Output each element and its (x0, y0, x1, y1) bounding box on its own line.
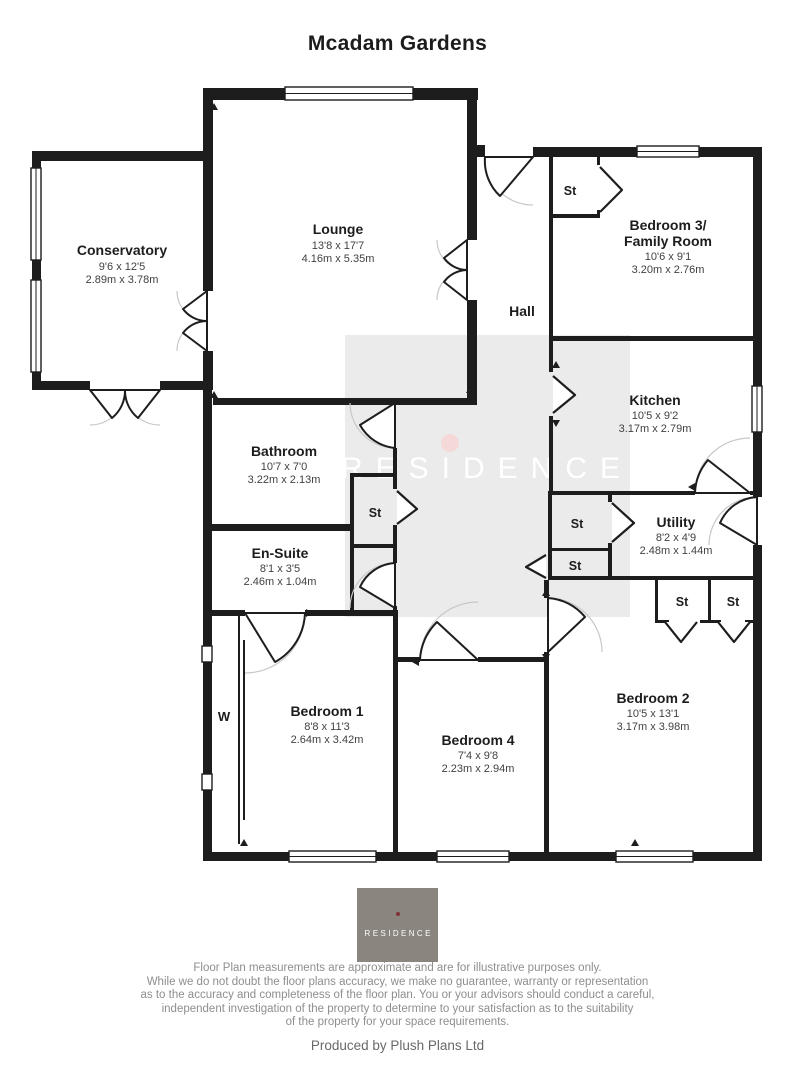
room-name: Bedroom 1 (290, 703, 363, 719)
room-dims-m: 2.64m x 3.42m (291, 734, 364, 746)
storage-label: St (571, 517, 584, 531)
room-name: En-Suite (252, 545, 309, 561)
wall-segment (213, 398, 477, 405)
room-dims-m: 2.23m x 2.94m (442, 763, 515, 775)
room-name: Lounge (313, 221, 364, 237)
wall-segment (753, 545, 762, 861)
wall-segment (655, 580, 658, 622)
door-leaf (420, 622, 478, 660)
room-dims-m: 2.89m x 3.78m (86, 274, 159, 286)
logo-text: RESIDENCE (362, 929, 433, 938)
window (202, 646, 212, 662)
room-dims-ft: 10'6 x 9'1 (645, 251, 691, 263)
door-chevron (718, 622, 750, 642)
wall-segment (467, 145, 485, 157)
wall-segment (350, 473, 397, 477)
room-dims-m: 3.20m x 2.76m (632, 264, 705, 276)
room-dims-ft: 8'1 x 3'5 (260, 563, 300, 575)
door-leaf (720, 497, 757, 545)
wardrobe-door-line (243, 640, 245, 820)
disclaimer-line: as to the accuracy and completeness of t… (0, 989, 795, 1003)
storage-label: St (369, 506, 382, 520)
room-name: Bathroom (251, 443, 317, 459)
room-label-bedroom4: Bedroom 4 7'4 x 9'8 2.23m x 2.94m (441, 732, 514, 775)
door-leaf (183, 321, 207, 351)
room-label-ensuite: En-Suite 8'1 x 3'5 2.46m x 1.04m (244, 545, 317, 588)
room-label-bedroom1: Bedroom 1 8'8 x 11'3 2.64m x 3.42m (290, 703, 363, 746)
residence-logo: RESIDENCE (357, 888, 438, 962)
wall-segment (597, 157, 600, 165)
room-dims-m: 2.46m x 1.04m (244, 576, 317, 588)
wardrobe-label: W (218, 709, 231, 724)
wall-segment (548, 548, 608, 551)
logo-dot-icon (396, 912, 400, 916)
wall-segment (549, 416, 553, 495)
room-label-bedroom2: Bedroom 2 10'5 x 13'1 3.17m x 3.98m (616, 690, 689, 733)
wall-segment (549, 336, 762, 341)
room-dims-ft: 13'8 x 17'7 (312, 240, 365, 252)
disclaimer-line: of the property for your space requireme… (0, 1016, 795, 1030)
room-dims-ft: 8'8 x 11'3 (304, 721, 350, 733)
footer: Floor Plan measurements are approximate … (0, 962, 795, 1053)
room-dims-m: 3.22m x 2.13m (248, 474, 321, 486)
door-leaf (90, 390, 125, 418)
produced-by: Produced by Plush Plans Ltd (0, 1038, 795, 1053)
wall-segment (708, 580, 711, 622)
room-name: Conservatory (77, 242, 167, 258)
marker-arrow (631, 839, 639, 846)
wall-segment (203, 524, 354, 531)
marker-arrow (688, 483, 695, 491)
room-dims-m: 2.48m x 1.44m (640, 545, 713, 557)
storage-label: St (569, 559, 582, 573)
room-label-conservatory: Conservatory 9'6 x 12'5 2.89m x 3.78m (77, 242, 167, 286)
door-chevron (665, 622, 697, 642)
room-dims-ft: 8'2 x 4'9 (656, 532, 696, 544)
room-name: Family Room (624, 233, 712, 249)
wall-segment (393, 525, 397, 548)
door-leaf (245, 613, 305, 662)
storage-label: St (727, 595, 740, 609)
wardrobe-door-line (238, 614, 240, 844)
room-dims-m: 3.17m x 2.79m (619, 423, 692, 435)
wall-segment (32, 381, 90, 390)
wall-segment (544, 652, 549, 852)
wall-segment (533, 147, 545, 157)
door-leaf (695, 460, 750, 493)
wall-segment (203, 88, 213, 160)
door-leaf (444, 240, 467, 270)
room-name: Hall (509, 303, 535, 319)
window (202, 774, 212, 790)
wall-segment (350, 473, 354, 548)
room-dims-ft: 10'5 x 13'1 (627, 708, 680, 720)
wall-segment (393, 548, 397, 563)
room-label-bedroom3: Bedroom 3/ Family Room 10'6 x 9'1 3.20m … (624, 217, 712, 276)
door-leaf (485, 157, 533, 196)
storage-label: St (676, 595, 689, 609)
wall-segment (478, 657, 548, 662)
room-name: Kitchen (629, 392, 680, 408)
room-label-hall: Hall (509, 303, 535, 319)
room-dims-ft: 10'7 x 7'0 (261, 461, 307, 473)
wall-segment (350, 544, 397, 548)
storage-label: St (564, 184, 577, 198)
wall-segment (548, 576, 762, 580)
room-dims-ft: 9'6 x 12'5 (99, 261, 145, 273)
room-name: Utility (657, 514, 696, 530)
wall-segment (548, 495, 552, 580)
wall-segment (467, 88, 477, 240)
watermark-text: RESIDENCE (341, 452, 633, 485)
wall-segment (553, 214, 597, 218)
door-leaf (444, 270, 467, 300)
walls (32, 88, 762, 861)
wall-segment (750, 491, 762, 495)
room-name: Bedroom 4 (441, 732, 514, 748)
disclaimer-line: independent investigation of the propert… (0, 1003, 795, 1017)
room-dims-ft: 10'5 x 9'2 (632, 410, 678, 422)
wall-segment (32, 151, 208, 161)
room-dims-ft: 7'4 x 9'8 (458, 750, 498, 762)
wall-segment (203, 151, 213, 291)
room-name: Bedroom 2 (616, 690, 689, 706)
door-leaf (125, 390, 160, 418)
disclaimer-line: Floor Plan measurements are approximate … (0, 962, 795, 976)
room-dims-m: 3.17m x 3.98m (617, 721, 690, 733)
watermark-dot (441, 434, 459, 452)
wall-segment (393, 473, 397, 489)
door-chevron (600, 167, 622, 212)
room-name: Bedroom 3/ (629, 217, 706, 233)
room-label-bathroom: Bathroom 10'7 x 7'0 3.22m x 2.13m (248, 443, 321, 486)
room-dims-m: 4.16m x 5.35m (302, 253, 375, 265)
wall-segment (548, 491, 695, 495)
wall-segment (753, 147, 762, 497)
wall-segment (393, 448, 397, 473)
room-label-lounge: Lounge 13'8 x 17'7 4.16m x 5.35m (302, 221, 375, 265)
disclaimer-line: While we do not doubt the floor plans ac… (0, 976, 795, 990)
wall-segment (608, 543, 612, 580)
wall-segment (608, 495, 612, 502)
wall-segment (393, 610, 398, 852)
room-label-utility: Utility 8'2 x 4'9 2.48m x 1.44m (640, 514, 713, 557)
wall-segment (549, 157, 553, 340)
door-leaf (183, 291, 207, 321)
marker-arrow (240, 839, 248, 846)
